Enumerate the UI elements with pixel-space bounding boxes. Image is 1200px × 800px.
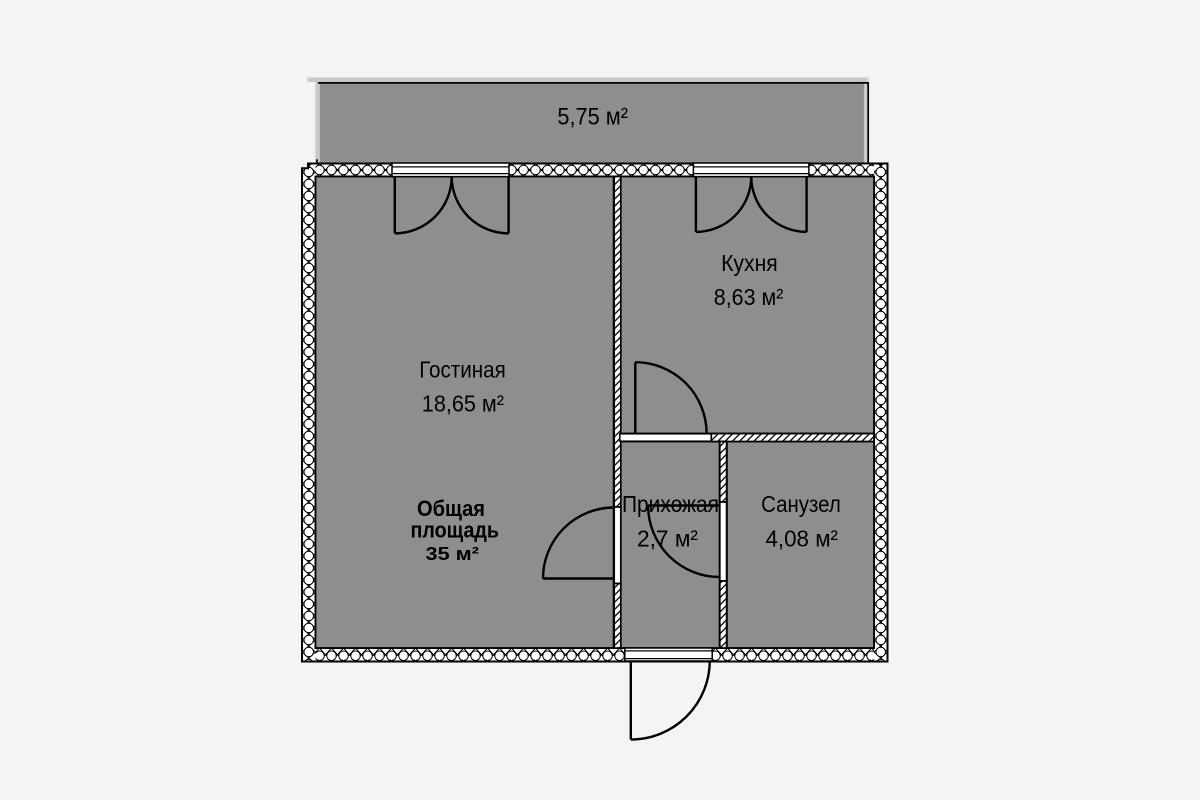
svg-text:18,65 м²: 18,65 м² (422, 390, 504, 416)
svg-text:8,63 м²: 8,63 м² (714, 284, 784, 310)
svg-text:площадь: площадь (411, 518, 500, 543)
svg-text:4,08 м²: 4,08 м² (766, 526, 839, 552)
svg-text:Гостиная: Гостиная (419, 356, 506, 382)
svg-text:Кухня: Кухня (721, 250, 778, 276)
svg-text:Санузел: Санузел (761, 491, 841, 517)
svg-text:5,75 м²: 5,75 м² (557, 103, 628, 130)
svg-text:2,7 м²: 2,7 м² (637, 526, 698, 552)
svg-text:35 м²: 35 м² (426, 543, 480, 564)
svg-text:Прихожая: Прихожая (622, 491, 719, 517)
